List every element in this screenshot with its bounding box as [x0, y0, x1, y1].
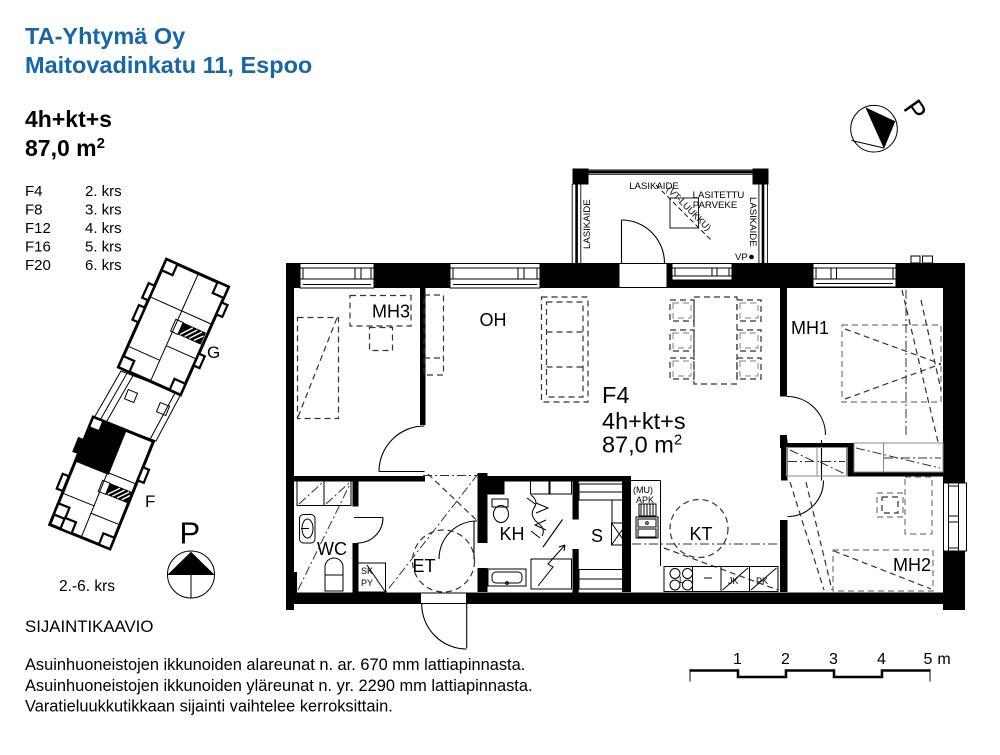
svg-text:F4: F4	[602, 382, 629, 408]
svg-text:m: m	[937, 651, 950, 668]
svg-text:5: 5	[924, 651, 933, 668]
svg-text:Varatieluukkutikkaan sijainti: Varatieluukkutikkaan sijainti vaihtelee …	[25, 698, 393, 716]
svg-text:JK: JK	[728, 576, 739, 586]
svg-text:VP: VP	[735, 252, 748, 263]
svg-text:F4: F4	[25, 183, 43, 200]
svg-text:87,0 m2: 87,0 m2	[602, 432, 682, 458]
svg-text:87,0 m2: 87,0 m2	[25, 135, 105, 161]
svg-text:Maitovadinkatu 11, Espoo: Maitovadinkatu 11, Espoo	[25, 52, 312, 78]
svg-text:F20: F20	[25, 257, 51, 274]
svg-text:Asuinhuoneistojen ikkunoiden a: Asuinhuoneistojen ikkunoiden alareunat n…	[25, 656, 525, 674]
svg-text:6. krs: 6. krs	[85, 257, 122, 274]
svg-text:4. krs: 4. krs	[85, 220, 122, 237]
svg-text:F12: F12	[25, 220, 51, 237]
svg-text:5. krs: 5. krs	[85, 239, 122, 256]
svg-text:MH3: MH3	[372, 302, 410, 322]
svg-text:KH: KH	[499, 524, 524, 544]
svg-text:4h+kt+s: 4h+kt+s	[25, 106, 112, 132]
svg-text:ET: ET	[412, 556, 435, 576]
svg-text:F8: F8	[25, 202, 43, 219]
svg-text:KT: KT	[689, 524, 712, 544]
svg-text:3. krs: 3. krs	[85, 202, 122, 219]
svg-text:OH: OH	[480, 310, 507, 330]
svg-text:MH1: MH1	[791, 318, 829, 338]
svg-text:S: S	[591, 526, 603, 546]
svg-text:1: 1	[733, 651, 742, 668]
svg-text:LASIKAIDE: LASIKAIDE	[747, 197, 758, 247]
svg-text:APK: APK	[636, 495, 654, 505]
svg-text:SK: SK	[361, 566, 373, 576]
svg-text:SIJAINTIKAAVIO: SIJAINTIKAAVIO	[25, 617, 153, 636]
svg-text:MH2: MH2	[893, 555, 931, 575]
svg-text:F16: F16	[25, 239, 51, 256]
svg-text:2: 2	[781, 651, 790, 668]
svg-text:3: 3	[829, 651, 838, 668]
svg-text:4h+kt+s: 4h+kt+s	[602, 408, 686, 434]
svg-text:F: F	[145, 492, 155, 511]
svg-text:(MU): (MU)	[633, 485, 653, 495]
svg-text:Asuinhuoneistojen ikkunoiden y: Asuinhuoneistojen ikkunoiden yläreunat n…	[25, 677, 533, 695]
svg-text:2.-6. krs: 2.-6. krs	[59, 578, 115, 595]
svg-text:LASIKAIDE: LASIKAIDE	[582, 199, 593, 249]
svg-text:4: 4	[877, 651, 886, 668]
svg-text:PARVEKE: PARVEKE	[693, 200, 737, 211]
svg-text:PY: PY	[361, 578, 373, 588]
svg-text:G: G	[207, 343, 220, 362]
svg-text:TA-Yhtymä Oy: TA-Yhtymä Oy	[25, 23, 185, 49]
svg-text:PK: PK	[756, 576, 768, 586]
svg-text:2. krs: 2. krs	[85, 183, 122, 200]
svg-text:L: L	[679, 575, 684, 585]
svg-text:P: P	[180, 516, 201, 551]
